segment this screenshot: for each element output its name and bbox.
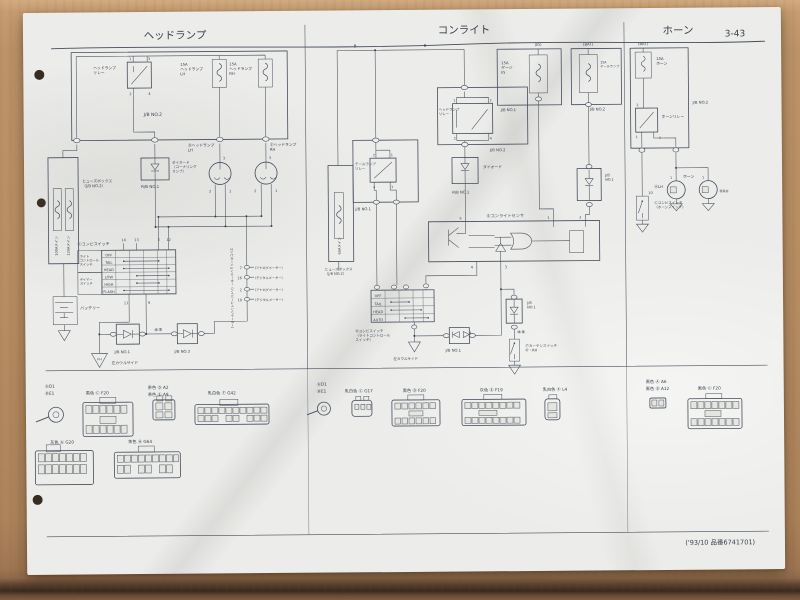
battery-label: バッテリー: [80, 304, 100, 310]
relay-pin: 3: [489, 98, 491, 102]
connector-l4: [545, 395, 560, 420]
tail-relay-label: テールランプリレー: [355, 161, 376, 171]
page-frame: [43, 21, 769, 537]
relay-pin: 1: [453, 99, 455, 103]
horn-lh-label: ⒶLH: [654, 184, 663, 189]
relay-pin: 4: [490, 136, 492, 140]
sw-row: FLASH: [103, 290, 115, 294]
horn-circuit: (BAT) 10Aホーン J/B NO.2 ホーンリレー 2 1 3 ⒶLH ホ…: [630, 40, 729, 232]
conn-label: 黒色 Ⓑ A12: [646, 385, 670, 392]
wiring-diagram: ヘッドランプ コンライト ホーン 3-43 ヘッドランプリレー 1 3: [23, 7, 785, 575]
section-title-horn: ホーン: [662, 25, 693, 37]
meter-label: コンビネーションメーター（ハイビームインジケーター）: [230, 247, 236, 330]
horn-pin: 1: [702, 176, 704, 180]
horn-switch-label: Ⓒコンビスイッチ（ホーンスイッチ）: [654, 200, 685, 210]
meter-pin: 2: [240, 288, 242, 292]
battery-ground: [58, 331, 70, 341]
sw-row: HEAD: [104, 268, 114, 272]
conn-label: 茶色 Ⓓ A2: [148, 384, 169, 391]
conn-label: ⒶD1: [317, 381, 327, 388]
fusible-link-box: [48, 158, 79, 264]
relay-pin: 3: [659, 136, 661, 140]
ig-fuse-box: [529, 55, 547, 93]
conn-label: 黒色 Ⓓ F20: [403, 387, 426, 394]
relay-pin: 1: [636, 135, 638, 139]
sw-row: OFF: [375, 294, 382, 298]
conn-label: 乳白色 Ⓕ L4: [543, 386, 568, 393]
wire-color: 緑-黒: [155, 327, 163, 332]
horn-pin: 1: [670, 176, 672, 180]
relay-pin: 2: [373, 153, 375, 157]
conn-label: 黒色 Ⓒ F20: [698, 385, 721, 392]
conn-label: 乳白色 Ⓒ G17: [345, 387, 373, 394]
meter-pin-label: （アナログメーター）: [253, 287, 285, 292]
meter-pin-label: （デジタルメーター）: [253, 275, 285, 280]
conn-label: 黒色 Ⓐ A6: [646, 378, 667, 385]
sw-pin: 12: [166, 238, 171, 242]
sw-row: OFF: [105, 253, 112, 257]
switch-group-2: ディマースイッチ: [80, 276, 93, 285]
sensor-internals: [448, 221, 583, 262]
ground-code: FH: [97, 357, 102, 361]
sensor-pin: 2: [579, 216, 581, 220]
wire-b: B: [354, 43, 357, 48]
comb-switch-title: Ⓓコンビスイッチ（ライトコントロールスイッチ）: [355, 328, 391, 342]
headlamp-bulb-rh: [255, 162, 277, 184]
relay-pin: 3: [148, 57, 150, 61]
headlamp-circuit: ヘッドランプリレー 1 3 2 4 15AヘッドランプLH 15AヘッドランプR…: [47, 51, 298, 368]
jb1-label: J/B NO.1: [113, 349, 130, 354]
fusebox-label: ヒューズボックス（J/B NO.2）: [325, 266, 353, 276]
head-relay-jb: J/B NO.2: [489, 147, 506, 152]
rb1-label: R/B NO.1: [452, 189, 470, 194]
connector-f19: [462, 394, 526, 426]
horn-switch-pin: 10: [648, 191, 653, 195]
headlamp-bulb-lh: [209, 162, 231, 184]
ig-fuse-label: 15AゲージIG: [501, 60, 513, 75]
horn-rh: [699, 181, 717, 199]
conn-label: 乳白色 Ⓕ G42: [208, 389, 236, 396]
section-title-headlamp: ヘッドランプ: [144, 30, 207, 42]
sw-row: HEAD: [373, 310, 383, 314]
sensor-pin: 1: [547, 216, 549, 220]
meter-pin: 10: [238, 298, 243, 302]
comb-switch-title: Ⓒコンビスイッチ: [78, 240, 110, 246]
connector-f20-mid: [392, 395, 440, 426]
footer-note: ('93/10 品番6741701): [685, 538, 755, 547]
ground-label: 左カウルサイド: [112, 360, 139, 365]
connector-g42: [195, 399, 269, 425]
header: ヘッドランプ コンライト ホーン 3-43: [144, 22, 746, 44]
connector-g20: [35, 444, 93, 484]
sw-row: HIGH: [104, 283, 113, 287]
bulb-pin: 2: [209, 190, 211, 194]
jb1-diode-label: J/B NO.1: [444, 348, 461, 353]
ground-triangle: [509, 365, 521, 374]
meter-pin-label: （デジタルメーター）: [253, 297, 285, 302]
conlight-sensor-label: Ⓔコンライトセンサ: [486, 212, 524, 219]
relay-pin: 4: [148, 92, 151, 96]
horn-label: ホーン: [683, 174, 694, 179]
horn-rh-label: ⒷRH: [719, 188, 728, 193]
jb2-label: J/B NO.2: [143, 112, 163, 118]
fusible-link: 60Aメイン: [338, 237, 342, 255]
conlight-circuit: B B 60Aメイン ヒューズボックス（J/B NO.2） テールランプリレー …: [323, 41, 624, 375]
ground-label: 左カウルサイド: [394, 356, 419, 361]
bulb-lh-label: ⒹヘッドランプLH: [188, 142, 215, 152]
fusible-link-2: 120Aメイン: [67, 236, 71, 256]
sw-row: TAIL: [104, 261, 112, 265]
bulb-pin: 2: [254, 189, 256, 193]
diode-label: ダイオード: [483, 164, 502, 169]
diode-label: ダイオード（コーナリングランプ）: [172, 160, 197, 174]
eyelet-terminal: [36, 407, 64, 422]
sw-pin: 3: [157, 238, 159, 242]
sensor-pin: 3: [505, 265, 507, 269]
connector-g17: [352, 396, 372, 416]
connector-a2-a9: [153, 396, 175, 420]
relay-pin: 1: [391, 153, 393, 157]
horn-lh: [667, 181, 685, 199]
ig-tag: (IG): [535, 42, 543, 47]
connector-f20-right: [688, 393, 742, 428]
ig-jb-label: J/B NO.1: [500, 107, 517, 112]
relay-pin: 4: [373, 185, 375, 189]
eyelet-terminal: [307, 402, 331, 415]
fusebox-label: ヒューズボックス（J/B NO.2）: [82, 178, 112, 188]
bat-fuse-box: [579, 54, 597, 92]
connector-g64: [114, 446, 180, 479]
horn-relay-label: ホーンリレー: [662, 114, 685, 119]
relay-pin: 2: [129, 92, 131, 96]
bulb-pin: 3: [223, 156, 225, 160]
bulb-pin: 1: [229, 189, 231, 193]
relay-pin: 3: [391, 185, 393, 189]
section-title-conlight: コンライト: [438, 24, 491, 36]
meter-pin: 7: [240, 266, 242, 270]
sw-pin: 13: [134, 238, 139, 242]
relay-pin: 2: [454, 137, 456, 141]
horn-fuse-label: 10Aホーン: [656, 56, 667, 66]
fusible-link-1: 100Aメイン: [55, 236, 59, 256]
conlight-sensor-box: [428, 220, 599, 261]
sw-row: TAIL: [373, 302, 381, 306]
jb1-small-label: J/BNO.1: [604, 173, 614, 181]
wiring-diagram-sheet: ヘッドランプ コンライト ホーン 3-43 ヘッドランプリレー 1 3: [23, 7, 785, 575]
rb1-label: R/B NO.1: [141, 184, 159, 189]
conn-label: 灰色 Ⓔ F19: [480, 386, 503, 393]
bat-fuse-enclosure: [571, 48, 621, 104]
sw-pin: 9: [148, 301, 150, 305]
desk-photo: ヘッドランプ コンライト ホーン 3-43 ヘッドランプリレー 1 3: [0, 0, 800, 600]
horn-fuse-box: [635, 52, 651, 78]
bat-tag: (BAT): [638, 41, 649, 46]
fuse-lh-label: 15AヘッドランプLH: [180, 62, 203, 77]
connector-f20: [83, 397, 133, 436]
switch-group-1: ライトコントロールスイッチ: [80, 253, 100, 266]
ground-triangle: [636, 224, 648, 232]
sensor-pin: 4: [471, 265, 474, 269]
relay-pin: 1: [129, 57, 131, 61]
tail-relay-enclosure: [353, 140, 418, 203]
fuse-rh-label: 15AヘッドランプRH: [229, 61, 252, 76]
bulb-rh-label: ⒺヘッドランプRH: [270, 142, 297, 152]
relay-pin: 2: [637, 103, 639, 107]
wire-color: 緑-黒: [517, 329, 525, 334]
connector-list: ⒶD1 ⒷE1 黒色 Ⓒ F20 茶色 Ⓓ A2 茶色 Ⓔ A9 乳白色 Ⓕ G…: [35, 377, 743, 485]
conn-label: ⒷE1: [45, 390, 55, 397]
conn-label: ⒷE1: [317, 388, 327, 395]
bulb-pin: 3: [269, 156, 271, 160]
ground-triangle: [408, 342, 420, 352]
bat-fuse-label: 15Aテールランプ: [600, 60, 620, 68]
light-control-switch-table: [78, 250, 176, 295]
connector-a6-a12: [650, 398, 666, 408]
meter-pin: 16: [237, 276, 242, 280]
page-number: 3-43: [725, 29, 746, 39]
sw-pin: 14: [121, 238, 126, 242]
conn-label: ⒶD1: [45, 383, 55, 390]
bat-jb-label: J/B NO.2: [589, 106, 606, 111]
jb2-label: J/B NO.2: [692, 100, 709, 105]
conn-label: 黒色 Ⓒ F20: [86, 389, 109, 396]
sw-pin: 11: [124, 301, 129, 305]
conlight-switch-table: [371, 284, 434, 329]
conn-label: 茶色 Ⓗ G64: [128, 438, 152, 445]
battery-box: [53, 297, 77, 325]
jb1-right-label: J/BNO.1: [526, 301, 536, 309]
punch-holes: [29, 70, 48, 505]
sw-row: AUTO: [373, 318, 383, 322]
relay-label: ヘッドランプリレー: [93, 65, 116, 75]
sw-row: LOW: [105, 275, 114, 279]
wire-b: B: [424, 43, 427, 48]
bulb-pin: 1: [275, 189, 277, 193]
sensor-pin: 5: [459, 217, 461, 221]
jb3-label: J/B NO.3: [173, 349, 190, 354]
courtesy-switch-label: ⒻカーテシスイッチFr・RH: [525, 343, 557, 353]
tail-relay-jb: J/B NO.1: [354, 206, 371, 211]
meter-pin-label: （アナログメーター）: [253, 265, 285, 270]
bat-tag: (BAT): [583, 42, 594, 47]
